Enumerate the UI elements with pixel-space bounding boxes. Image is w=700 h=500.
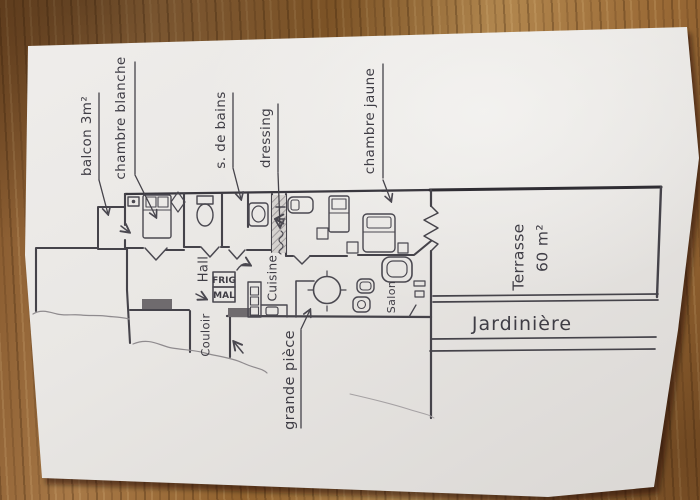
label-dressing: dressing	[258, 108, 274, 168]
label-couloir: Couloir	[199, 313, 213, 356]
label-terrasse-area: 60 m²	[534, 224, 552, 272]
label-balcon: balcon 3m²	[79, 96, 95, 176]
floor-plan-sketch: balcon 3m² chambre blanche s. de bains d…	[0, 0, 700, 500]
label-hall: Hall	[197, 256, 212, 283]
label-chambre-blanche: chambre blanche	[113, 56, 129, 179]
label-terrasse: Terrasse	[510, 223, 528, 291]
label-salon: Salon	[385, 281, 398, 313]
label-mal: MAL	[213, 291, 235, 301]
label-frig: FRIG	[212, 276, 236, 286]
label-cuisine: Cuisine	[266, 255, 280, 302]
label-jardiniere: Jardinière	[471, 313, 572, 335]
label-grande-piece: grande pièce	[282, 330, 298, 430]
photo-floor-plan-on-table: balcon 3m² chambre blanche s. de bains d…	[0, 0, 700, 500]
label-s-de-bains: s. de bains	[213, 91, 229, 168]
label-chambre-jaune: chambre jaune	[362, 68, 378, 174]
